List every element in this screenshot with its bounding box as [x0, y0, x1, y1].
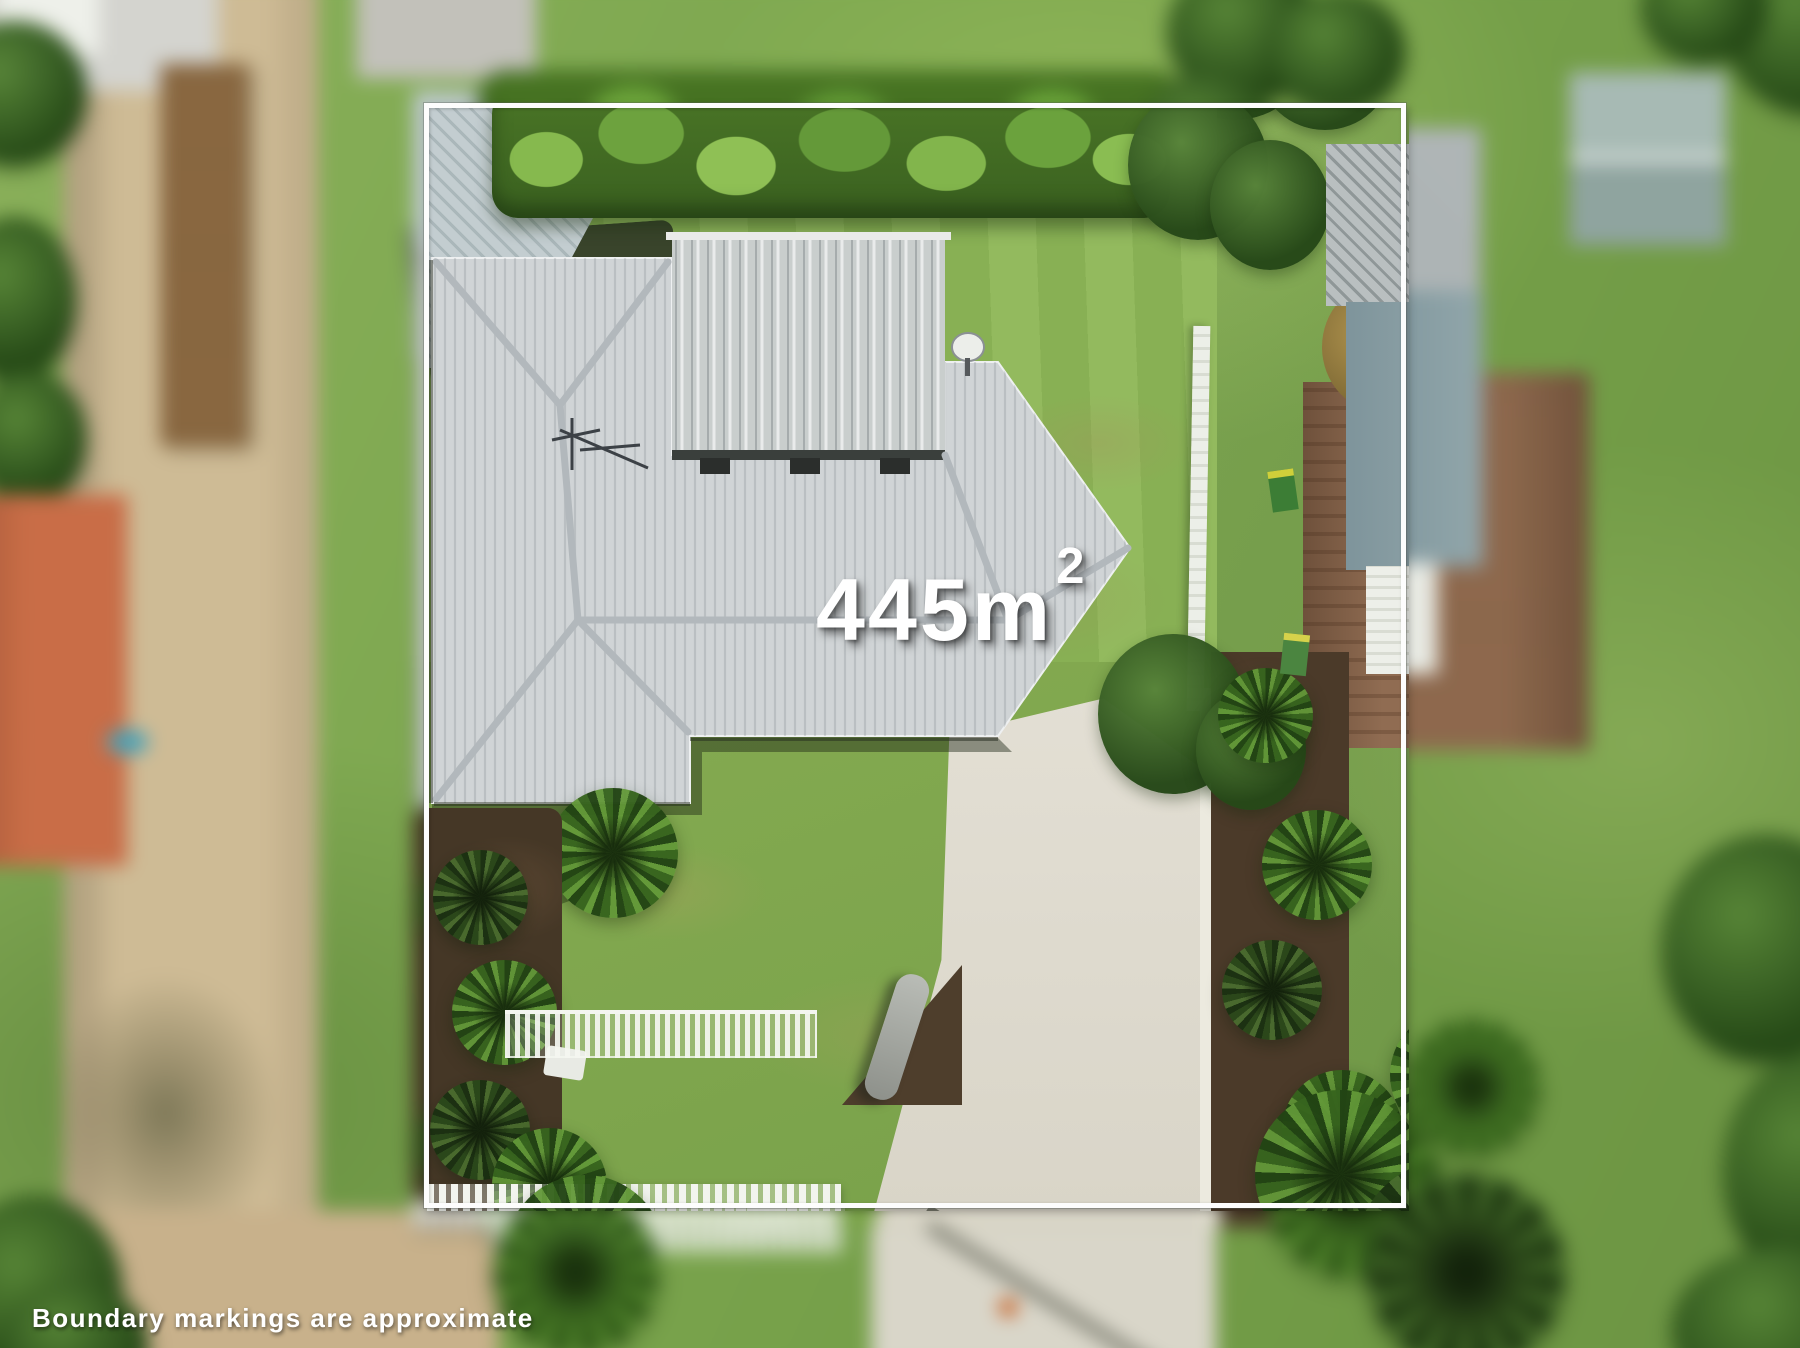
area-superscript: 2: [1056, 537, 1084, 594]
area-label: 445m2: [816, 566, 1084, 654]
disclaimer-text: Boundary markings are approximate: [32, 1303, 534, 1334]
aerial-photo: 445m2 Boundary markings are approximate: [0, 0, 1800, 1348]
area-value: 445m: [816, 560, 1053, 659]
